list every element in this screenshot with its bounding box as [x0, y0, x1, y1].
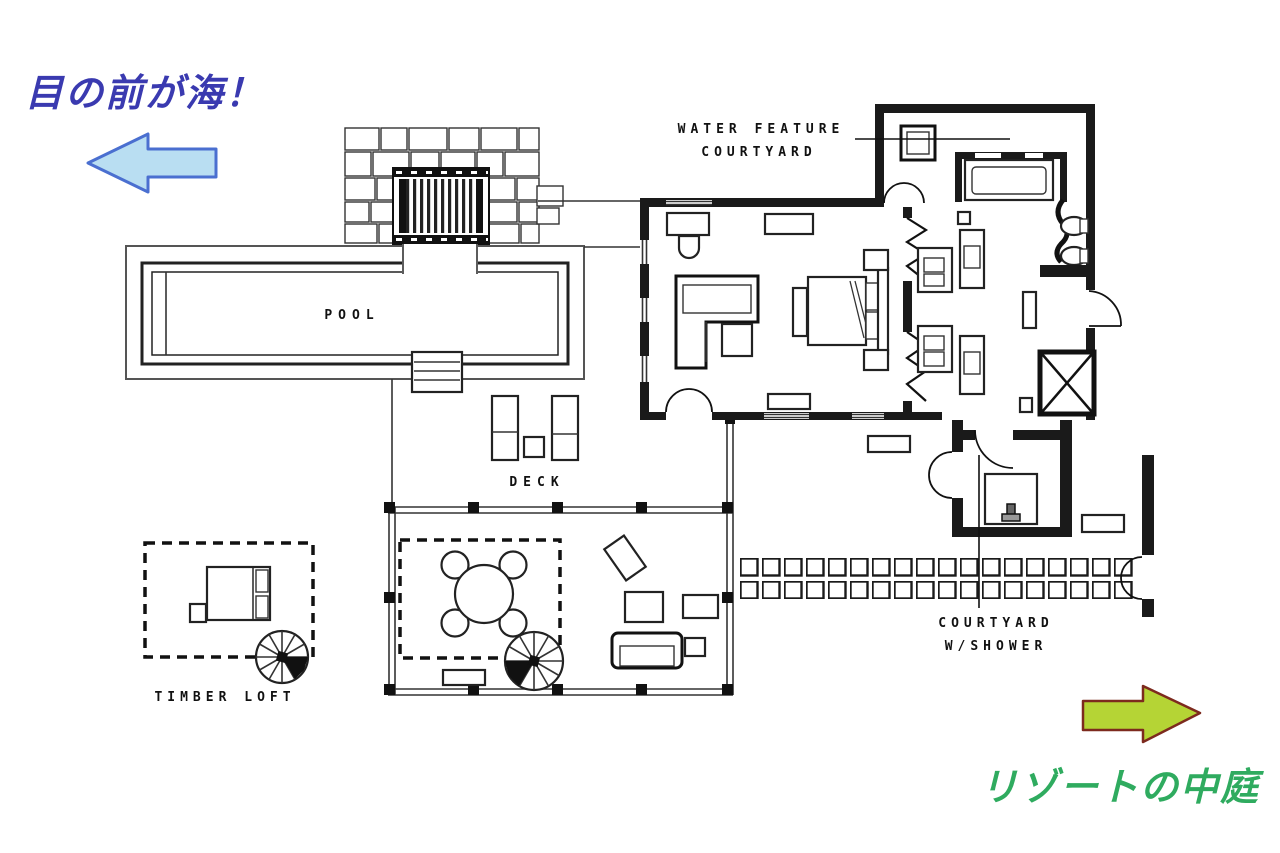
side-table	[685, 638, 705, 656]
french-door	[666, 389, 712, 420]
resort-annotation: リゾートの中庭	[980, 686, 1264, 809]
nightstand	[864, 350, 888, 370]
spiral-stair-icon	[256, 631, 308, 683]
timber-loft: TIMBER LOFT	[145, 543, 313, 705]
stone-path	[345, 128, 640, 243]
pavilion-table	[683, 595, 718, 618]
stepping-stones	[740, 558, 1134, 599]
pavilion-bench	[443, 670, 485, 685]
courtyard-shower-label: COURTYARD W/SHOWER	[938, 616, 1053, 654]
bed-bench	[793, 288, 807, 336]
sea-annotation: 目の前が海！	[25, 71, 265, 192]
pavilion-table	[625, 592, 663, 622]
courtyard-door	[884, 183, 924, 207]
spiral-stair-icon	[505, 632, 563, 690]
deck-lounger	[552, 396, 578, 460]
bathroom	[955, 152, 1067, 202]
sea-direction-arrow	[88, 134, 216, 192]
resort-note-text: リゾートの中庭	[980, 765, 1264, 809]
coffee-table	[722, 324, 752, 356]
wash-basin	[679, 236, 699, 258]
slide-canvas: POOL DECK	[0, 0, 1280, 853]
bed	[793, 250, 888, 370]
console-table	[667, 213, 709, 235]
console-table	[765, 214, 813, 234]
bench	[768, 394, 810, 409]
timber-loft-label: TIMBER LOFT	[154, 690, 295, 705]
svg-text:COURTYARD: COURTYARD	[938, 616, 1053, 631]
wall-shelf	[1023, 292, 1036, 328]
nightstand	[864, 250, 888, 270]
lounge-chair-tilted	[604, 536, 645, 581]
water-feature-label: WATER FEATURE COURTYARD	[678, 122, 845, 160]
svg-text:COURTYARD: COURTYARD	[701, 145, 816, 160]
sea-note-text: 目の前が海！	[25, 71, 265, 115]
deck-label: DECK	[509, 475, 564, 490]
garden-bench	[868, 436, 910, 452]
pool: POOL	[126, 244, 640, 379]
pool-label: POOL	[324, 308, 379, 323]
headboard	[878, 268, 888, 354]
loft-bed	[190, 567, 270, 622]
svg-text:WATER FEATURE: WATER FEATURE	[678, 122, 845, 137]
water-feature	[901, 126, 935, 160]
main-suite-furniture	[667, 213, 888, 409]
floor-plan: POOL DECK	[0, 0, 1280, 853]
dining-set	[442, 552, 527, 637]
pool-steps	[412, 352, 462, 392]
svg-text:W/SHOWER: W/SHOWER	[945, 639, 1048, 654]
deck-area: DECK	[392, 379, 578, 507]
garden-bench	[1082, 515, 1124, 532]
wall-shelf	[1020, 398, 1032, 412]
pavilion-sofa	[612, 633, 682, 668]
wardrobe	[918, 212, 984, 394]
closet-x	[1040, 352, 1094, 414]
boundary-wall	[1121, 455, 1154, 617]
deck-side-table	[524, 437, 544, 457]
dining-table-round	[455, 565, 513, 623]
deck-lounger	[492, 396, 518, 460]
nightstand	[190, 604, 206, 622]
pool-bridge-gate	[393, 168, 489, 244]
garden-gate-leaves	[929, 452, 952, 498]
resort-direction-arrow	[1083, 686, 1200, 742]
